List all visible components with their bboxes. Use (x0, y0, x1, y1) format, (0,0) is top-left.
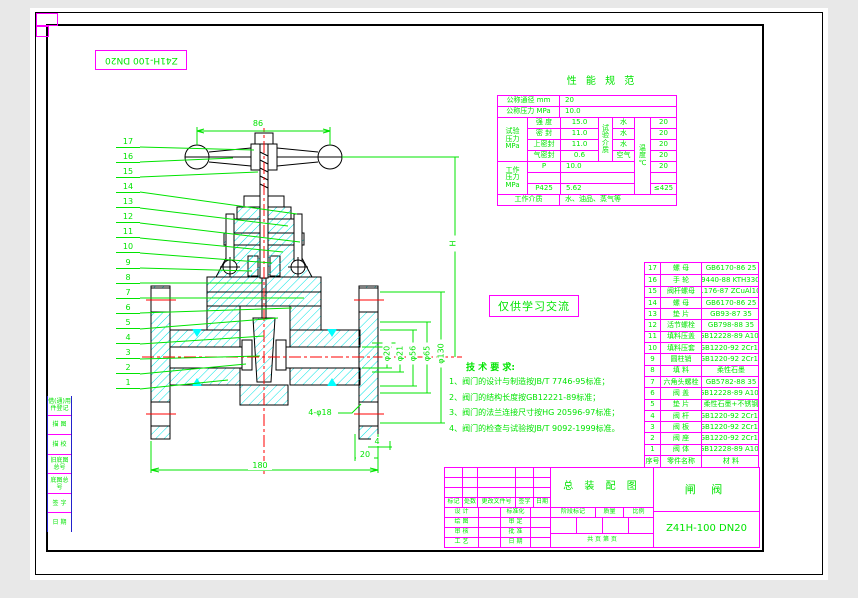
dim-port: φ65 (423, 343, 432, 365)
bom-row: 12 活节螺栓 GB798-88 35 (645, 319, 758, 330)
tech-requirements-list: 1、阀门的设计与制造按JB/T 7746-95标准；2、阀门的结构长度按GB12… (449, 374, 654, 436)
balloon-list: 1716151413121110987654321 (116, 137, 140, 389)
bom-part-name: 螺 母 (660, 297, 701, 308)
margin-label: 签 字 (48, 493, 71, 513)
bom-part-number: 7 (645, 376, 660, 387)
bom-row: 10 填料压套 GB1220-92 2Cr13 (645, 342, 758, 353)
bom-part-name: 圆柱销 (660, 353, 701, 364)
bom-row: 16 手 轮 GB9440-88 KTH330-08 (645, 274, 758, 285)
bom-part-number: 1 (645, 444, 660, 455)
bom-part-number: 5 (645, 399, 660, 410)
bom-row: 3 阀 板 GB1220-92 2Cr13 (645, 421, 758, 432)
perf-bottom-label: 工作介质 (497, 194, 560, 206)
perf-work-group: 工作 压力 MPa (497, 161, 528, 195)
dim-height: H (449, 236, 458, 252)
bom-part-number: 13 (645, 308, 660, 319)
bom-part-material: GB5782-88 35 (701, 376, 758, 387)
bom-header-no: 序号 (645, 456, 660, 467)
tb-product-name: 闸 阀 (653, 467, 760, 512)
bom-part-name: 阀 体 (660, 444, 701, 455)
bom-row: 13 垫 片 GB93-87 35 (645, 308, 758, 319)
bom-part-name: 阀 座 (660, 432, 701, 443)
bom-part-material: GB1220-92 2Cr13 (701, 432, 758, 443)
balloon-number: 4 (116, 333, 140, 344)
bom-header-material: 材 料 (701, 456, 758, 467)
bom-row: 11 填料压盖 GB12228-89 A105 (645, 331, 758, 342)
tb-pages: 共 页 第 页 (550, 533, 654, 548)
bom-part-name: 垫 片 (660, 308, 701, 319)
balloon-number: 9 (116, 258, 140, 269)
tb-drawing-name: 总 装 配 图 (550, 467, 654, 508)
margin-strip: 借(通)用件登记描 图描 校旧底图总号底图总号签 字日 期 (47, 396, 72, 532)
bom-part-material: 柔性石墨 (701, 365, 758, 376)
bom-part-number: 15 (645, 286, 660, 297)
balloon-number: 13 (116, 197, 140, 208)
balloon-number: 8 (116, 273, 140, 284)
balloon-number: 15 (116, 167, 140, 178)
dim-4: 4 (371, 437, 383, 446)
balloon-number: 1 (116, 378, 140, 389)
margin-label: 底图总号 (48, 473, 71, 493)
tech-requirement-item: 2、阀门的结构长度按GB12221-89标准； (449, 390, 654, 406)
dim-bolt-holes: 4-φ18 (302, 408, 338, 417)
bom-part-material: GB1220-92 2Cr13 (701, 342, 758, 353)
bom-part-name: 阀 杆 (660, 410, 701, 421)
bom-part-name: 阀 板 (660, 421, 701, 432)
bom-row: 8 填 料 柔性石墨 (645, 365, 758, 376)
bom-part-number: 8 (645, 365, 660, 376)
tb-process: 工 艺 (444, 537, 479, 548)
watermark-text: 仅供学习交流 (498, 298, 570, 314)
bom-part-material: GB1220-92 2Cr13 (701, 410, 758, 421)
balloon-number: 2 (116, 363, 140, 374)
tech-requirement-item: 1、阀门的设计与制造按JB/T 7746-95标准； (449, 374, 654, 390)
perf-bottom-value: 水、油品、蒸气等 (559, 194, 677, 206)
bom-part-number: 17 (645, 263, 660, 274)
bom-part-number: 3 (645, 421, 660, 432)
bom-row: 1 阀 体 GB12228-89 A105 (645, 444, 758, 455)
bom-row: 15 阀杆螺母 GB1176-87 ZCuAl10Fe3 (645, 286, 758, 297)
cad-drawing-page: 1716151413121110987654321 86 H φ20 φ21 φ… (0, 0, 858, 598)
bom-row: 4 阀 杆 GB1220-92 2Cr13 (645, 410, 758, 421)
balloon-number: 3 (116, 348, 140, 359)
balloon-number: 16 (116, 152, 140, 163)
balloon-number: 14 (116, 182, 140, 193)
bom-part-name: 活节螺栓 (660, 319, 701, 330)
bom-part-number: 10 (645, 342, 660, 353)
bom-part-material: GB6170-86 25 (701, 263, 758, 274)
balloon-number: 17 (116, 137, 140, 148)
bom-part-name: 垫 片 (660, 399, 701, 410)
margin-label: 描 图 (48, 415, 71, 435)
title-block: 标记 处数 更改文件号 签字 日期 设 计标准化 绘 图审 定 审 核批 准 工… (444, 467, 760, 548)
bom-table: 17 螺 母 GB6170-86 25 16 手 轮 GB9440-88 KTH… (644, 262, 759, 456)
bom-part-material: GB12228-89 A105 (701, 331, 758, 342)
perf-test-group: 试验 压力 MPa (497, 117, 528, 162)
balloon-number: 11 (116, 227, 140, 238)
performance-table: 公称通径 mm 20 公称压力 MPa 10.0 试验 压力 MPa 强 度 密… (497, 95, 677, 206)
dim-flange: φ130 (437, 340, 446, 368)
dim-seat: φ56 (409, 343, 418, 365)
bom-part-material: GB9440-88 KTH330-08 (701, 274, 758, 285)
bom-part-name: 六角头螺栓 (660, 376, 701, 387)
bom-part-material: GB1176-87 ZCuAl10Fe3 (701, 286, 758, 297)
bom-row: 2 阀 座 GB1220-92 2Cr13 (645, 432, 758, 443)
bom-part-material: GB798-88 35 (701, 319, 758, 330)
performance-table-title: 性 能 规 范 (543, 72, 661, 87)
bom-part-material: 柔性石墨+不锈钢 (701, 399, 758, 410)
bom-part-number: 16 (645, 274, 660, 285)
tech-requirement-item: 3、阀门的法兰连接尺寸按HG 20596-97标准； (449, 405, 654, 421)
perf-temp-group: 温 度 ℃ (634, 117, 651, 195)
bom-part-number: 11 (645, 331, 660, 342)
balloon-number: 7 (116, 288, 140, 299)
bom-row: 17 螺 母 GB6170-86 25 (645, 263, 758, 274)
bom-part-number: 12 (645, 319, 660, 330)
corner-stamp-text: Z41H-100 DN20 (105, 55, 178, 65)
dim-stem: φ21 (396, 343, 405, 365)
balloon-number: 10 (116, 242, 140, 253)
bom-part-name: 填 料 (660, 365, 701, 376)
balloon-number: 6 (116, 303, 140, 314)
dim-top-width: 86 (246, 119, 270, 128)
bom-part-name: 填料压盖 (660, 331, 701, 342)
perf-medium-group: 试 验 介 质 (598, 117, 613, 162)
bom-part-name: 手 轮 (660, 274, 701, 285)
bom-part-name: 阀杆螺母 (660, 286, 701, 297)
margin-label: 借(通)用件登记 (48, 396, 71, 415)
bom-row: 5 垫 片 柔性石墨+不锈钢 (645, 399, 758, 410)
tb-date: 日 期 (500, 537, 531, 548)
bom-part-material: GB93-87 35 (701, 308, 758, 319)
dim-face-to-face: 180 (248, 461, 272, 470)
bom-part-material: GB1220-92 2Cr13 (701, 353, 758, 364)
margin-label: 旧底图总号 (48, 454, 71, 474)
bom-header-name: 零件名称 (660, 456, 701, 467)
tech-requirement-item: 4、阀门的检查与试验按JB/T 9092-1999标准。 (449, 421, 654, 437)
dim-20: 20 (356, 450, 374, 459)
bom-part-name: 螺 母 (660, 263, 701, 274)
bom-part-number: 9 (645, 353, 660, 364)
corner-stamp: Z41H-100 DN20 (95, 50, 187, 70)
bom-part-name: 阀 盖 (660, 387, 701, 398)
bom-part-number: 2 (645, 432, 660, 443)
bom-part-number: 14 (645, 297, 660, 308)
bom-part-material: GB12228-89 A105 (701, 387, 758, 398)
bom-row: 7 六角头螺栓 GB5782-88 35 (645, 376, 758, 387)
tech-requirements-title: 技 术 要 求: (466, 360, 515, 373)
margin-label: 描 校 (48, 434, 71, 454)
bom-part-material: GB1220-92 2Cr13 (701, 421, 758, 432)
bom-row: 6 阀 盖 GB12228-89 A105 (645, 387, 758, 398)
watermark-box: 仅供学习交流 (489, 295, 579, 317)
bom-part-material: GB12228-89 A105 (701, 444, 758, 455)
bom-part-number: 4 (645, 410, 660, 421)
balloon-number: 12 (116, 212, 140, 223)
bom-part-material: GB6170-86 25 (701, 297, 758, 308)
tb-model: Z41H-100 DN20 (653, 511, 760, 548)
bom-part-name: 填料压套 (660, 342, 701, 353)
dim-bore: φ20 (383, 343, 392, 365)
margin-label: 日 期 (48, 512, 71, 532)
bom-part-number: 6 (645, 387, 660, 398)
bom-row: 14 螺 母 GB6170-86 25 (645, 297, 758, 308)
bom-row: 9 圆柱销 GB1220-92 2Cr13 (645, 353, 758, 364)
balloon-number: 5 (116, 318, 140, 329)
